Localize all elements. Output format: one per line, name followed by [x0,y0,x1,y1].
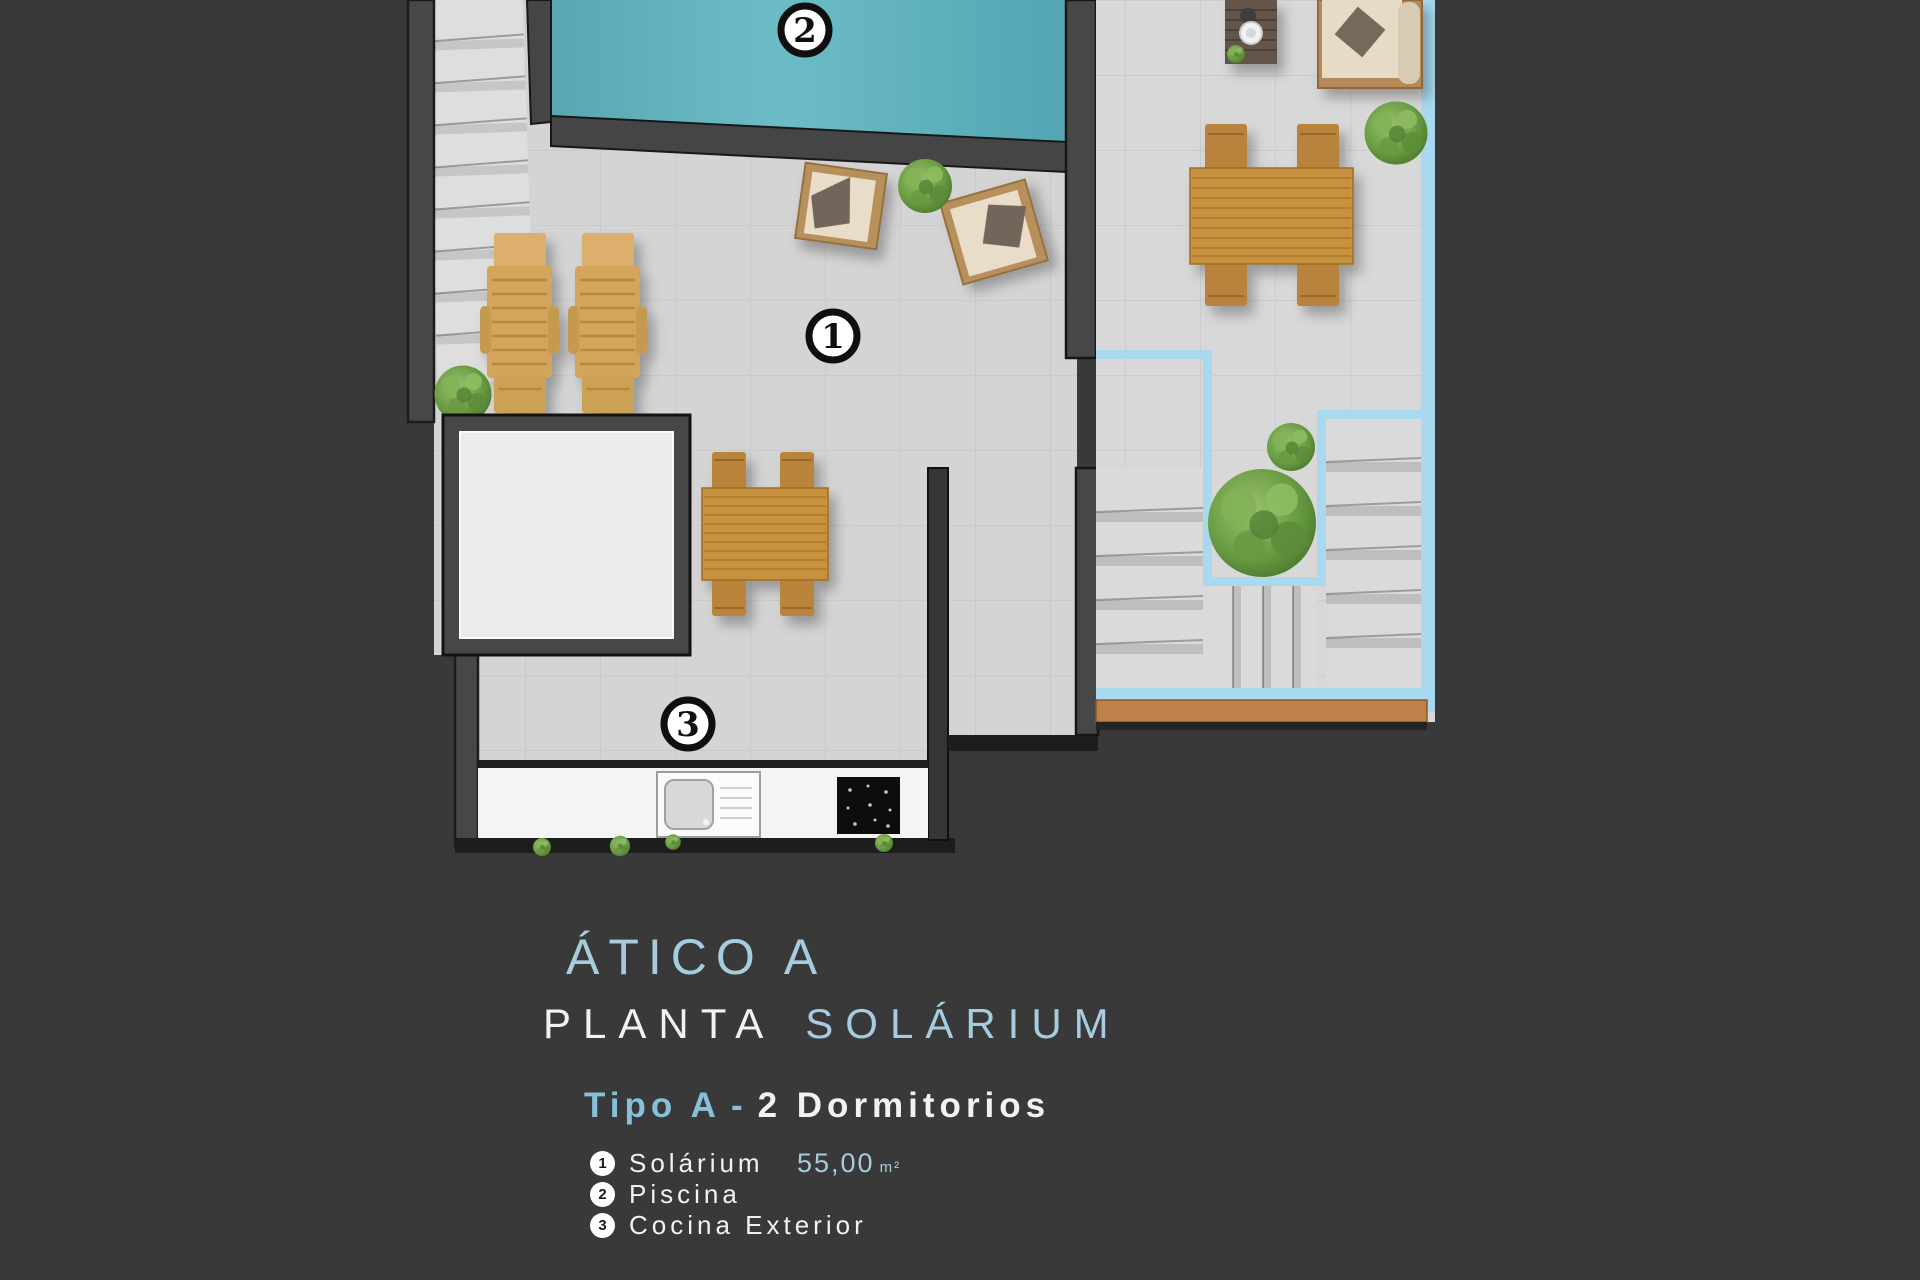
table-right [1190,168,1353,264]
legend-bullet-1: 1 [590,1151,615,1176]
plant-icon [1365,102,1428,165]
unit-type-label: Tipo A [584,1086,721,1125]
right-terrace [1096,0,1435,730]
sofa [1318,0,1422,88]
plant-icon [898,159,952,213]
legend-unit: m² [880,1159,902,1176]
legend: 1 Solárium 55,00m² 2 Piscina 3 Cocina Ex… [590,1148,867,1241]
stairs-right-right-flight [1326,418,1421,688]
main-terrace [408,0,1098,856]
wall-interior-right [928,468,948,840]
legend-label: Solárium [629,1148,764,1179]
stove-icon [837,777,900,834]
stairwell-room [443,415,690,655]
plant-sprig-icon [875,834,893,852]
unit-type-separator: - [731,1086,748,1125]
legend-label: Piscina [629,1179,741,1210]
planter-bush-icon [1267,423,1315,471]
legend-item-piscina: 2 Piscina [590,1179,867,1209]
subtitle-floor-highlight: SOLÁRIUM [805,1000,1120,1047]
page-subtitle-floor: PLANTASOLÁRIUM [543,1000,1121,1048]
svg-text:3: 3 [676,705,700,745]
unit-type-heading: Tipo A-2 Dormitorios [584,1086,1050,1126]
legend-label: Cocina Exterior [629,1210,867,1241]
wall-divider-lower [1076,468,1098,735]
plan-marker-piscina: 2 [781,6,829,54]
legend-value [797,1179,802,1210]
legend-bullet-2: 2 [590,1182,615,1207]
unit-type-bedrooms: 2 Dormitorios [758,1086,1051,1125]
flyer-page: 2 1 3 ÁTICO A PLANTASOLÁRIUM Tipo A-2 Do… [0,0,1920,1280]
svg-text:2: 2 [793,11,817,51]
grill-table [1225,0,1277,64]
page-title: ÁTICO A [566,928,826,986]
plan-marker-cocina: 3 [664,700,712,748]
wall-left-upper [408,0,434,422]
wall-divider-upper [1066,0,1096,358]
sink-icon [657,772,760,837]
wood-edge-shadow [1096,722,1427,730]
subtitle-floor-word: PLANTA [543,1000,775,1047]
stairs-right-left-flight [1096,468,1203,688]
svg-text:1: 1 [821,317,845,357]
legend-value: 55,00m² [797,1148,901,1179]
plant-sprig-icon [610,836,630,856]
wall-edge-lower-right [948,735,1098,751]
stairs-right-bottom-flight [1203,586,1317,688]
legend-bullet-3: 3 [590,1213,615,1238]
legend-item-solarium: 1 Solárium 55,00m² [590,1148,867,1178]
legend-value [797,1210,802,1241]
plant-sprig-icon [665,834,681,850]
wall-left-lower [455,650,478,846]
plant-sprig-icon [533,838,551,856]
armchair [795,163,887,250]
planter-bush-icon [1208,469,1316,577]
wood-edge-strip [1096,700,1427,722]
plant-sprig-icon [1227,45,1245,63]
legend-item-cocina-exterior: 3 Cocina Exterior [590,1210,867,1240]
plan-marker-solarium: 1 [809,312,857,360]
